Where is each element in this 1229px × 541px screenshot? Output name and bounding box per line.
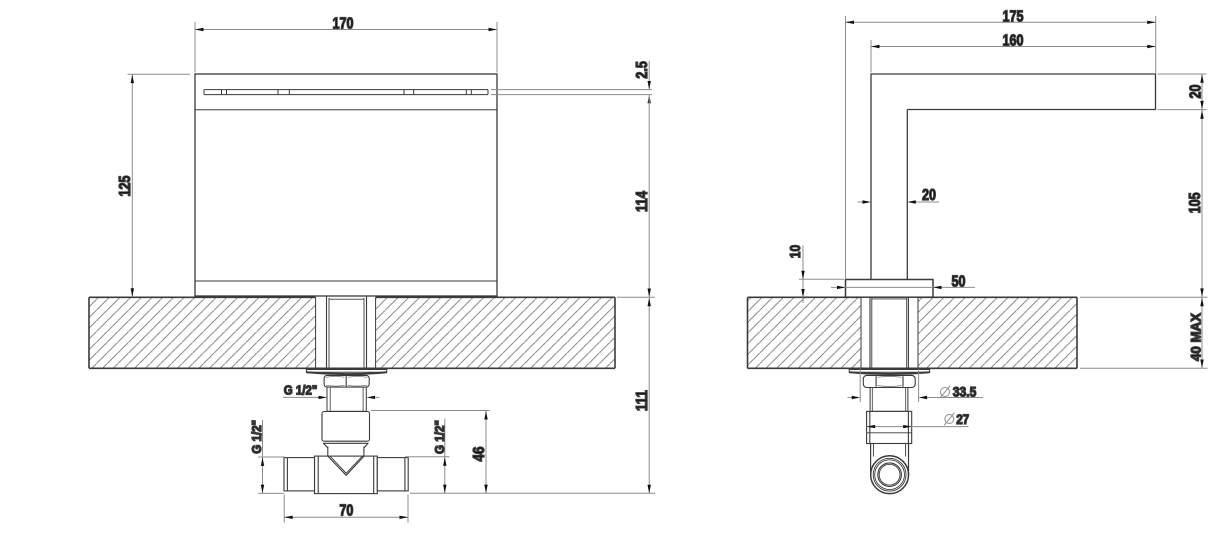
svg-text:G 1/2": G 1/2" — [433, 420, 447, 454]
svg-text:20: 20 — [1187, 85, 1204, 99]
svg-text:33.5: 33.5 — [953, 384, 977, 399]
svg-text:27: 27 — [956, 412, 969, 427]
svg-text:2.5: 2.5 — [634, 61, 651, 79]
svg-text:170: 170 — [333, 16, 354, 33]
svg-text:46: 46 — [471, 446, 488, 461]
svg-text:105: 105 — [1187, 192, 1204, 213]
svg-text:20: 20 — [922, 187, 936, 204]
svg-text:111: 111 — [634, 390, 651, 411]
svg-text:70: 70 — [339, 503, 353, 520]
svg-text:40 MAX: 40 MAX — [1188, 313, 1203, 361]
svg-text:10: 10 — [787, 245, 804, 259]
svg-text:G 1/2": G 1/2" — [250, 420, 264, 454]
svg-text:114: 114 — [634, 191, 651, 212]
svg-text:50: 50 — [952, 273, 966, 290]
svg-text:160: 160 — [1003, 33, 1024, 50]
svg-text:125: 125 — [117, 175, 134, 196]
svg-text:175: 175 — [1003, 9, 1024, 26]
svg-text:G 1/2": G 1/2" — [284, 383, 318, 397]
